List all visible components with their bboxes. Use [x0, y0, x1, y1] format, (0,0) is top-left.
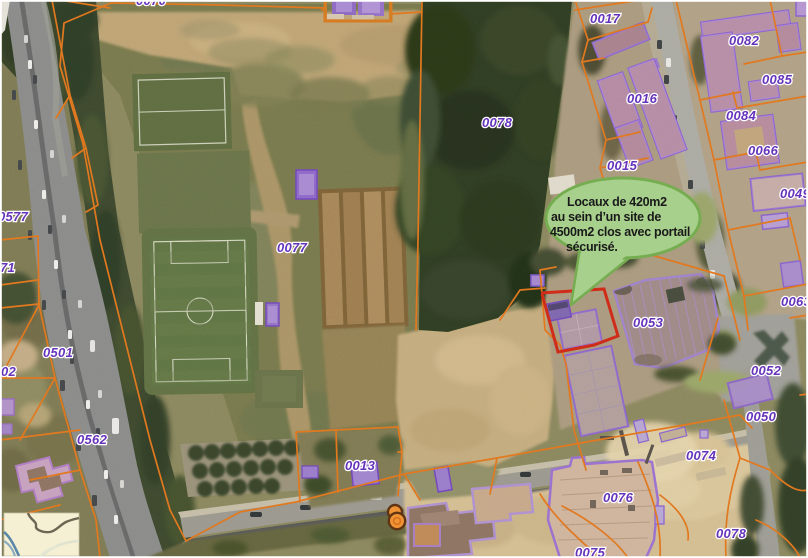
svg-text:0085: 0085: [762, 72, 793, 87]
svg-text:0082: 0082: [729, 33, 760, 48]
svg-text:0577: 0577: [0, 209, 29, 224]
svg-text:4500m2 clos avec portail: 4500m2 clos avec portail: [550, 225, 690, 239]
svg-text:0078: 0078: [482, 115, 513, 130]
svg-text:0084: 0084: [726, 108, 757, 123]
svg-text:0016: 0016: [627, 91, 658, 106]
svg-text:0053: 0053: [633, 315, 664, 330]
svg-text:0562: 0562: [77, 432, 108, 447]
svg-text:02: 02: [1, 364, 17, 379]
svg-text:0074: 0074: [686, 448, 717, 463]
svg-text:0063: 0063: [781, 294, 808, 309]
svg-text:Locaux de 420m2: Locaux de 420m2: [567, 195, 667, 209]
svg-text:0077: 0077: [277, 240, 308, 255]
svg-text:0075: 0075: [575, 545, 606, 558]
svg-text:0066: 0066: [748, 143, 779, 158]
svg-text:0078: 0078: [716, 526, 747, 541]
svg-text:71: 71: [0, 260, 15, 275]
svg-text:0052: 0052: [751, 363, 782, 378]
svg-text:0076: 0076: [603, 490, 634, 505]
svg-text:sécurisé.: sécurisé.: [566, 240, 618, 254]
svg-text:0013: 0013: [345, 458, 376, 473]
svg-text:au sein d’un site de: au sein d’un site de: [551, 210, 661, 224]
svg-text:0017: 0017: [590, 11, 621, 26]
svg-text:0501: 0501: [43, 345, 73, 360]
svg-text:0049: 0049: [780, 186, 808, 201]
svg-text:0050: 0050: [746, 409, 777, 424]
svg-text:0015: 0015: [607, 158, 638, 173]
